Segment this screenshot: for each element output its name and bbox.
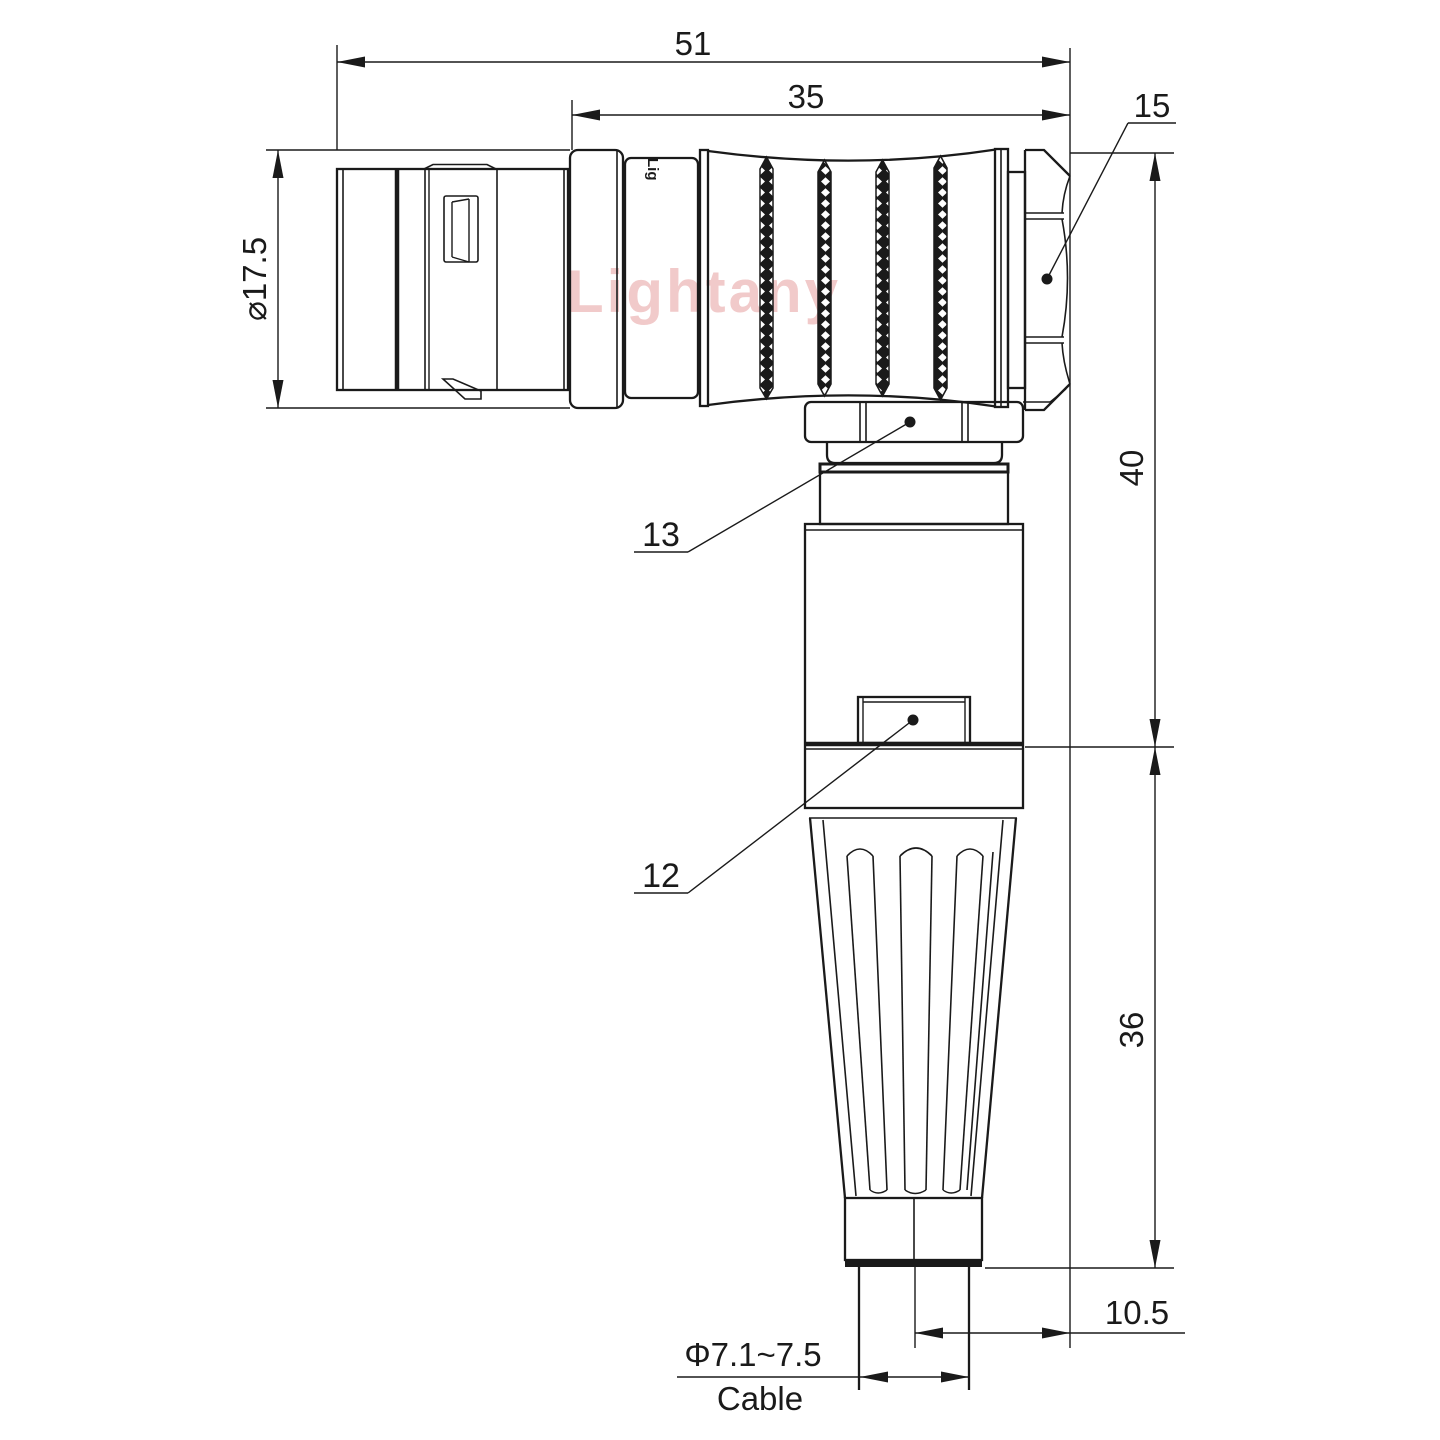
- cable-word-label: Cable: [717, 1380, 803, 1417]
- elbow-washer: [820, 442, 1008, 472]
- dim-40-label: 40: [1113, 450, 1150, 487]
- label-13-text: 13: [642, 516, 680, 554]
- cable-ferrule: [845, 1198, 982, 1267]
- elbow-upper-body: [820, 472, 1008, 524]
- dimension-rear-length: 35: [572, 78, 1070, 150]
- dimension-overall-length: 51: [337, 25, 1070, 150]
- dimension-exit-offset: 10.5: [915, 1267, 1185, 1348]
- elbow-main-body: [805, 524, 1023, 818]
- dimension-upper-height: 40: [1025, 48, 1174, 1348]
- part-label-13: 13: [634, 417, 916, 555]
- watermark-text: Lightany: [567, 258, 841, 325]
- dim-10-5-label: 10.5: [1105, 1294, 1169, 1331]
- brand-engraving: Lig: [644, 158, 661, 181]
- dim-15-label: 15: [1134, 87, 1171, 124]
- plug-latch-window: [444, 196, 478, 262]
- bend-relief-cone: [810, 818, 1016, 1198]
- dimension-lower-height: 36: [985, 747, 1174, 1268]
- label-12-text: 12: [642, 857, 680, 895]
- dim-36-label: 36: [1113, 1012, 1150, 1049]
- dim-17-5-label: ⌀17.5: [236, 237, 273, 321]
- connector-drawing: Lightany Lig: [0, 0, 1440, 1440]
- hex-nut-neck: [1008, 172, 1025, 388]
- part-label-12: 12: [634, 715, 919, 896]
- plug-front-shell: [337, 165, 568, 391]
- dim-35-label: 35: [788, 78, 825, 115]
- dim-51-label: 51: [675, 25, 712, 62]
- drawing-page: Lightany Lig: [0, 0, 1440, 1440]
- dimension-shell-diameter: ⌀17.5: [236, 150, 570, 408]
- cable: [859, 1267, 969, 1390]
- dimension-cable-diameter: Φ7.1~7.5 Cable: [677, 1336, 969, 1417]
- dim-cable-range-label: Φ7.1~7.5: [684, 1336, 821, 1373]
- elbow-nut: [805, 389, 1066, 442]
